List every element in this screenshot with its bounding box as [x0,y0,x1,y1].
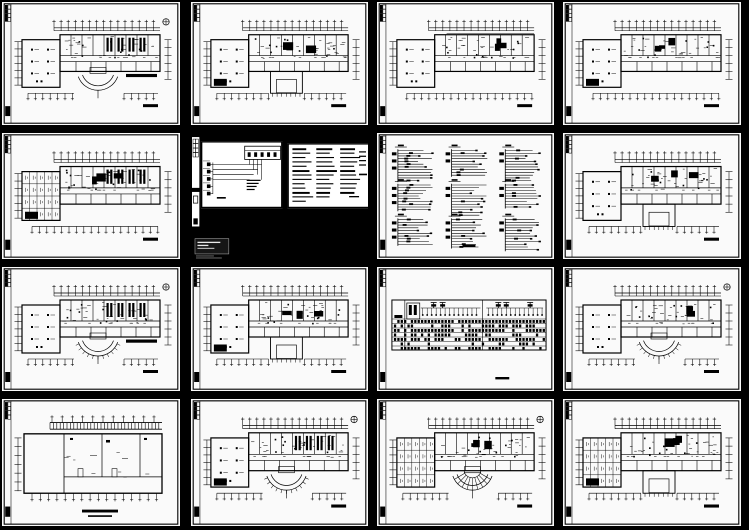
floor-plan-sheet[interactable] [563,399,741,526]
cad-linework [2,2,180,125]
floor-plan-sheet[interactable] [191,2,368,125]
busway-section-schedule-sheet[interactable] [377,267,554,391]
floor-plan-sheet[interactable] [377,399,554,526]
cad-linework [191,2,368,125]
floor-plan-sheet[interactable] [2,267,180,391]
floor-plan-sheet[interactable] [2,133,180,259]
cad-linework [191,399,368,526]
cad-linework [563,2,741,125]
floor-plan-sheet[interactable] [191,399,368,526]
cad-linework [2,399,180,526]
cad-linework [563,267,741,391]
cad-linework [377,267,554,391]
cad-linework [191,133,368,259]
basement-plan-sheet[interactable] [2,399,180,526]
floor-plan-sheet[interactable] [563,2,741,125]
cad-sheet-grid [0,0,749,530]
cad-linework [377,133,554,259]
cad-linework [2,133,180,259]
distribution-riser-diagram-sheet[interactable] [377,133,554,259]
floor-plan-sheet[interactable] [191,267,368,391]
electrical-system-schematic-sheet[interactable] [191,133,368,259]
cad-linework [2,267,180,391]
cad-linework [563,133,741,259]
cad-linework [377,2,554,125]
cad-linework [563,399,741,526]
floor-plan-sheet[interactable] [563,133,741,259]
floor-plan-sheet[interactable] [2,2,180,125]
cad-linework [191,267,368,391]
cad-linework [377,399,554,526]
floor-plan-sheet[interactable] [563,267,741,391]
floor-plan-sheet[interactable] [377,2,554,125]
